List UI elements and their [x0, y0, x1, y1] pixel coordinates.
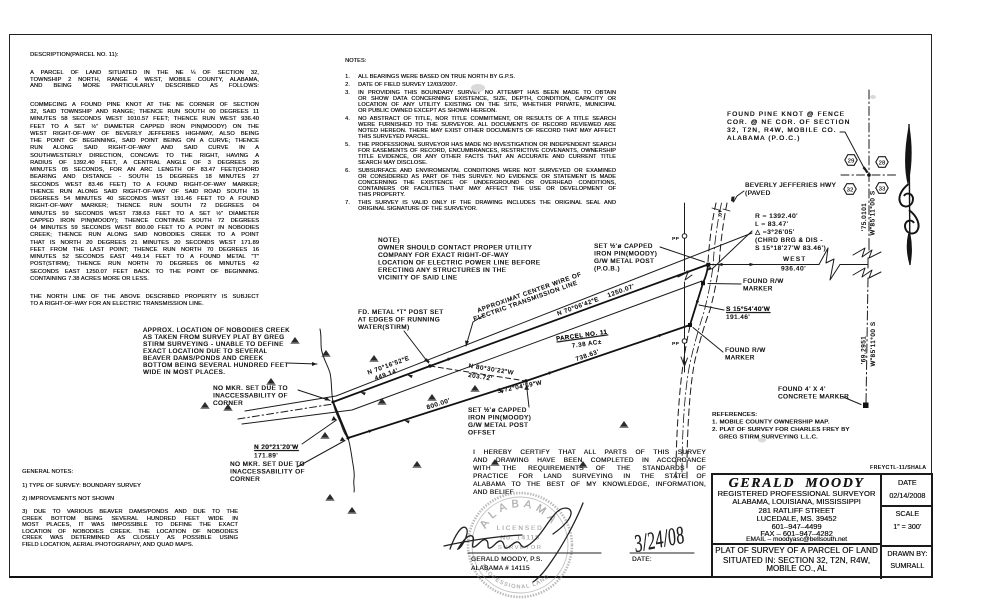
- svg-text:3/24/08: 3/24/08: [631, 520, 687, 558]
- svg-text:FOUND R/W: FOUND R/W: [743, 278, 784, 285]
- svg-text:IRON PIN(MOODY): IRON PIN(MOODY): [468, 415, 531, 422]
- svg-text:(P.O.B.): (P.O.B.): [594, 266, 620, 273]
- svg-text:MARKER: MARKER: [725, 355, 755, 362]
- svg-text:191.46’: 191.46’: [726, 314, 750, 321]
- svg-text:ALABAMA # 14115: ALABAMA # 14115: [471, 565, 530, 572]
- svg-text:INACCESSABILITY OF: INACCESSABILITY OF: [213, 393, 288, 400]
- svg-text:S 15°54’40’W: S 15°54’40’W: [726, 306, 770, 313]
- svg-text:2. PLAT OF SURVEY FOR CHARLES: 2. PLAT OF SURVEY FOR CHARLES FREY BY: [712, 427, 850, 433]
- svg-text:AT EDGES OF RUNNING: AT EDGES OF RUNNING: [358, 317, 440, 324]
- svg-text:WATER(STIRM): WATER(STIRM): [358, 324, 410, 331]
- svg-text:(PAVED: (PAVED: [745, 190, 771, 197]
- svg-text:32, T2N, R4W, MOBILE CO.: 32, T2N, R4W, MOBILE CO.: [727, 127, 837, 134]
- svg-text:IRON PIN(MOODY): IRON PIN(MOODY): [594, 251, 657, 258]
- svg-text:FD. METAL “T” POST SET: FD. METAL “T” POST SET: [358, 309, 444, 316]
- svg-text:G/W METAL POST: G/W METAL POST: [594, 258, 654, 265]
- svg-text:COR. @ NE COR. OF SECTION: COR. @ NE COR. OF SECTION: [727, 119, 850, 126]
- svg-text:WEST: WEST: [783, 256, 806, 263]
- svg-text:N 20°21’20’W: N 20°21’20’W: [254, 444, 299, 451]
- svg-text:28: 28: [879, 160, 886, 166]
- svg-text:STIRM SURVEYING - UNABLE TO DE: STIRM SURVEYING - UNABLE TO DEFINE: [143, 341, 284, 348]
- svg-text:(CHRD BRG & DIS -: (CHRD BRG & DIS -: [755, 237, 823, 244]
- svg-text:GERALD MOODY, P.S.: GERALD MOODY, P.S.: [471, 556, 543, 563]
- svg-text:40’: 40’: [717, 210, 723, 219]
- svg-text:ELECTRIC TRANSMISSION LINE: ELECTRIC TRANSMISSION LINE: [473, 280, 579, 322]
- svg-text:OWNER SHOULD CONTACT PROPER UT: OWNER SHOULD CONTACT PROPER UTILITY: [378, 245, 532, 252]
- svg-text:LOCATION OF ELECTRIC POWER LIN: LOCATION OF ELECTRIC POWER LINE BEFORE: [378, 260, 540, 267]
- svg-text:FOUND PINE KNOT @ FENCE: FOUND PINE KNOT @ FENCE: [727, 111, 845, 118]
- svg-text:BEVERLY JEFFERIES HWY: BEVERLY JEFFERIES HWY: [745, 182, 837, 189]
- svg-text:NO MKR. SET DUE TO: NO MKR. SET DUE TO: [213, 385, 288, 392]
- svg-text:29: 29: [848, 158, 855, 164]
- svg-text:CORNER: CORNER: [213, 400, 243, 407]
- svg-text:W”85’11°00 S: W”85’11°00 S: [871, 321, 877, 366]
- svg-text:OFFSET: OFFSET: [468, 430, 496, 437]
- svg-text:DATE:: DATE:: [632, 556, 652, 563]
- svg-text:△ =3°26’05’: △ =3°26’05’: [755, 228, 795, 236]
- svg-text:WIDE IN MOST PLACES.: WIDE IN MOST PLACES.: [143, 369, 225, 376]
- svg-text:’69.2951: ’69.2951: [861, 336, 867, 365]
- svg-text:32: 32: [847, 187, 854, 193]
- svg-text:COMPANY FOR EXACT RIGHT-OF-WAY: COMPANY FOR EXACT RIGHT-OF-WAY: [378, 252, 509, 259]
- svg-text:MARKER: MARKER: [743, 286, 773, 293]
- svg-text:PP: PP: [672, 236, 679, 241]
- svg-text:R = 1392.40’: R = 1392.40’: [755, 213, 798, 220]
- svg-text:G/W METAL POST: G/W METAL POST: [468, 422, 528, 429]
- svg-text:LICENSED: LICENSED: [497, 525, 544, 532]
- svg-text:PP: PP: [672, 341, 679, 346]
- svg-text:33: 33: [879, 186, 886, 192]
- svg-text:ERECTING ANY STRUCTURES IN THE: ERECTING ANY STRUCTURES IN THE: [378, 267, 506, 274]
- svg-text:SET ½’ø CAPPED: SET ½’ø CAPPED: [594, 243, 653, 250]
- svg-text:’75.0101: ’75.0101: [862, 203, 868, 232]
- svg-text:APPROX. LOCATION OF NOBODIES C: APPROX. LOCATION OF NOBODIES CREEK: [143, 327, 290, 334]
- svg-text:ALABAMA (P.O.C.): ALABAMA (P.O.C.): [727, 135, 800, 142]
- svg-text:203.72’: 203.72’: [468, 373, 493, 383]
- svg-text:L = 83.47’: L = 83.47’: [755, 221, 789, 228]
- svg-text:7.38 AC±: 7.38 AC±: [571, 339, 602, 349]
- svg-text:FREYCTL-11/SHALA: FREYCTL-11/SHALA: [870, 465, 926, 471]
- svg-text:VICINITY OF SAID LINE: VICINITY OF SAID LINE: [378, 275, 458, 282]
- svg-text:CORNER: CORNER: [230, 476, 260, 483]
- svg-text:CONCRETE MARKER: CONCRETE MARKER: [778, 394, 849, 401]
- svg-text:BEAVER DAMS/PONDS AND CREEK: BEAVER DAMS/PONDS AND CREEK: [143, 355, 264, 362]
- svg-text:GREG STIRM SURVEYING L.L.C.: GREG STIRM SURVEYING L.L.C.: [719, 435, 818, 441]
- svg-text:EXACT LOCATION DUE TO SEVERAL: EXACT LOCATION DUE TO SEVERAL: [143, 348, 268, 355]
- svg-text:NO MKR. SET DUE TO: NO MKR. SET DUE TO: [230, 461, 305, 468]
- svg-text:FOUND 4’ X 4’: FOUND 4’ X 4’: [778, 386, 826, 393]
- svg-text:REFERENCES:: REFERENCES:: [712, 412, 757, 418]
- svg-text:W”85’11°00 S: W”85’11°00 S: [871, 190, 877, 235]
- svg-text:171.89’: 171.89’: [254, 453, 278, 460]
- svg-text:S 15°18’27’W 83.46’): S 15°18’27’W 83.46’): [755, 244, 826, 252]
- svg-text:BOTTOM BEING SEVERAL HUNDRED F: BOTTOM BEING SEVERAL HUNDRED FEET: [143, 362, 289, 369]
- svg-text:NOTE): NOTE): [378, 237, 400, 244]
- svg-text:936.40’: 936.40’: [781, 266, 806, 273]
- svg-text:SET ½’ø CAPPED: SET ½’ø CAPPED: [468, 407, 527, 414]
- svg-text:AS TAKEN FROM SURVEY PLAT BY G: AS TAKEN FROM SURVEY PLAT BY GREG: [143, 334, 284, 341]
- svg-text:1. MOBILE COUNTY OWNERSHIP MAP: 1. MOBILE COUNTY OWNERSHIP MAP.: [712, 420, 830, 426]
- svg-text:INACCESSABILITY OF: INACCESSABILITY OF: [230, 469, 305, 476]
- svg-text:FOUND R/W: FOUND R/W: [725, 347, 766, 354]
